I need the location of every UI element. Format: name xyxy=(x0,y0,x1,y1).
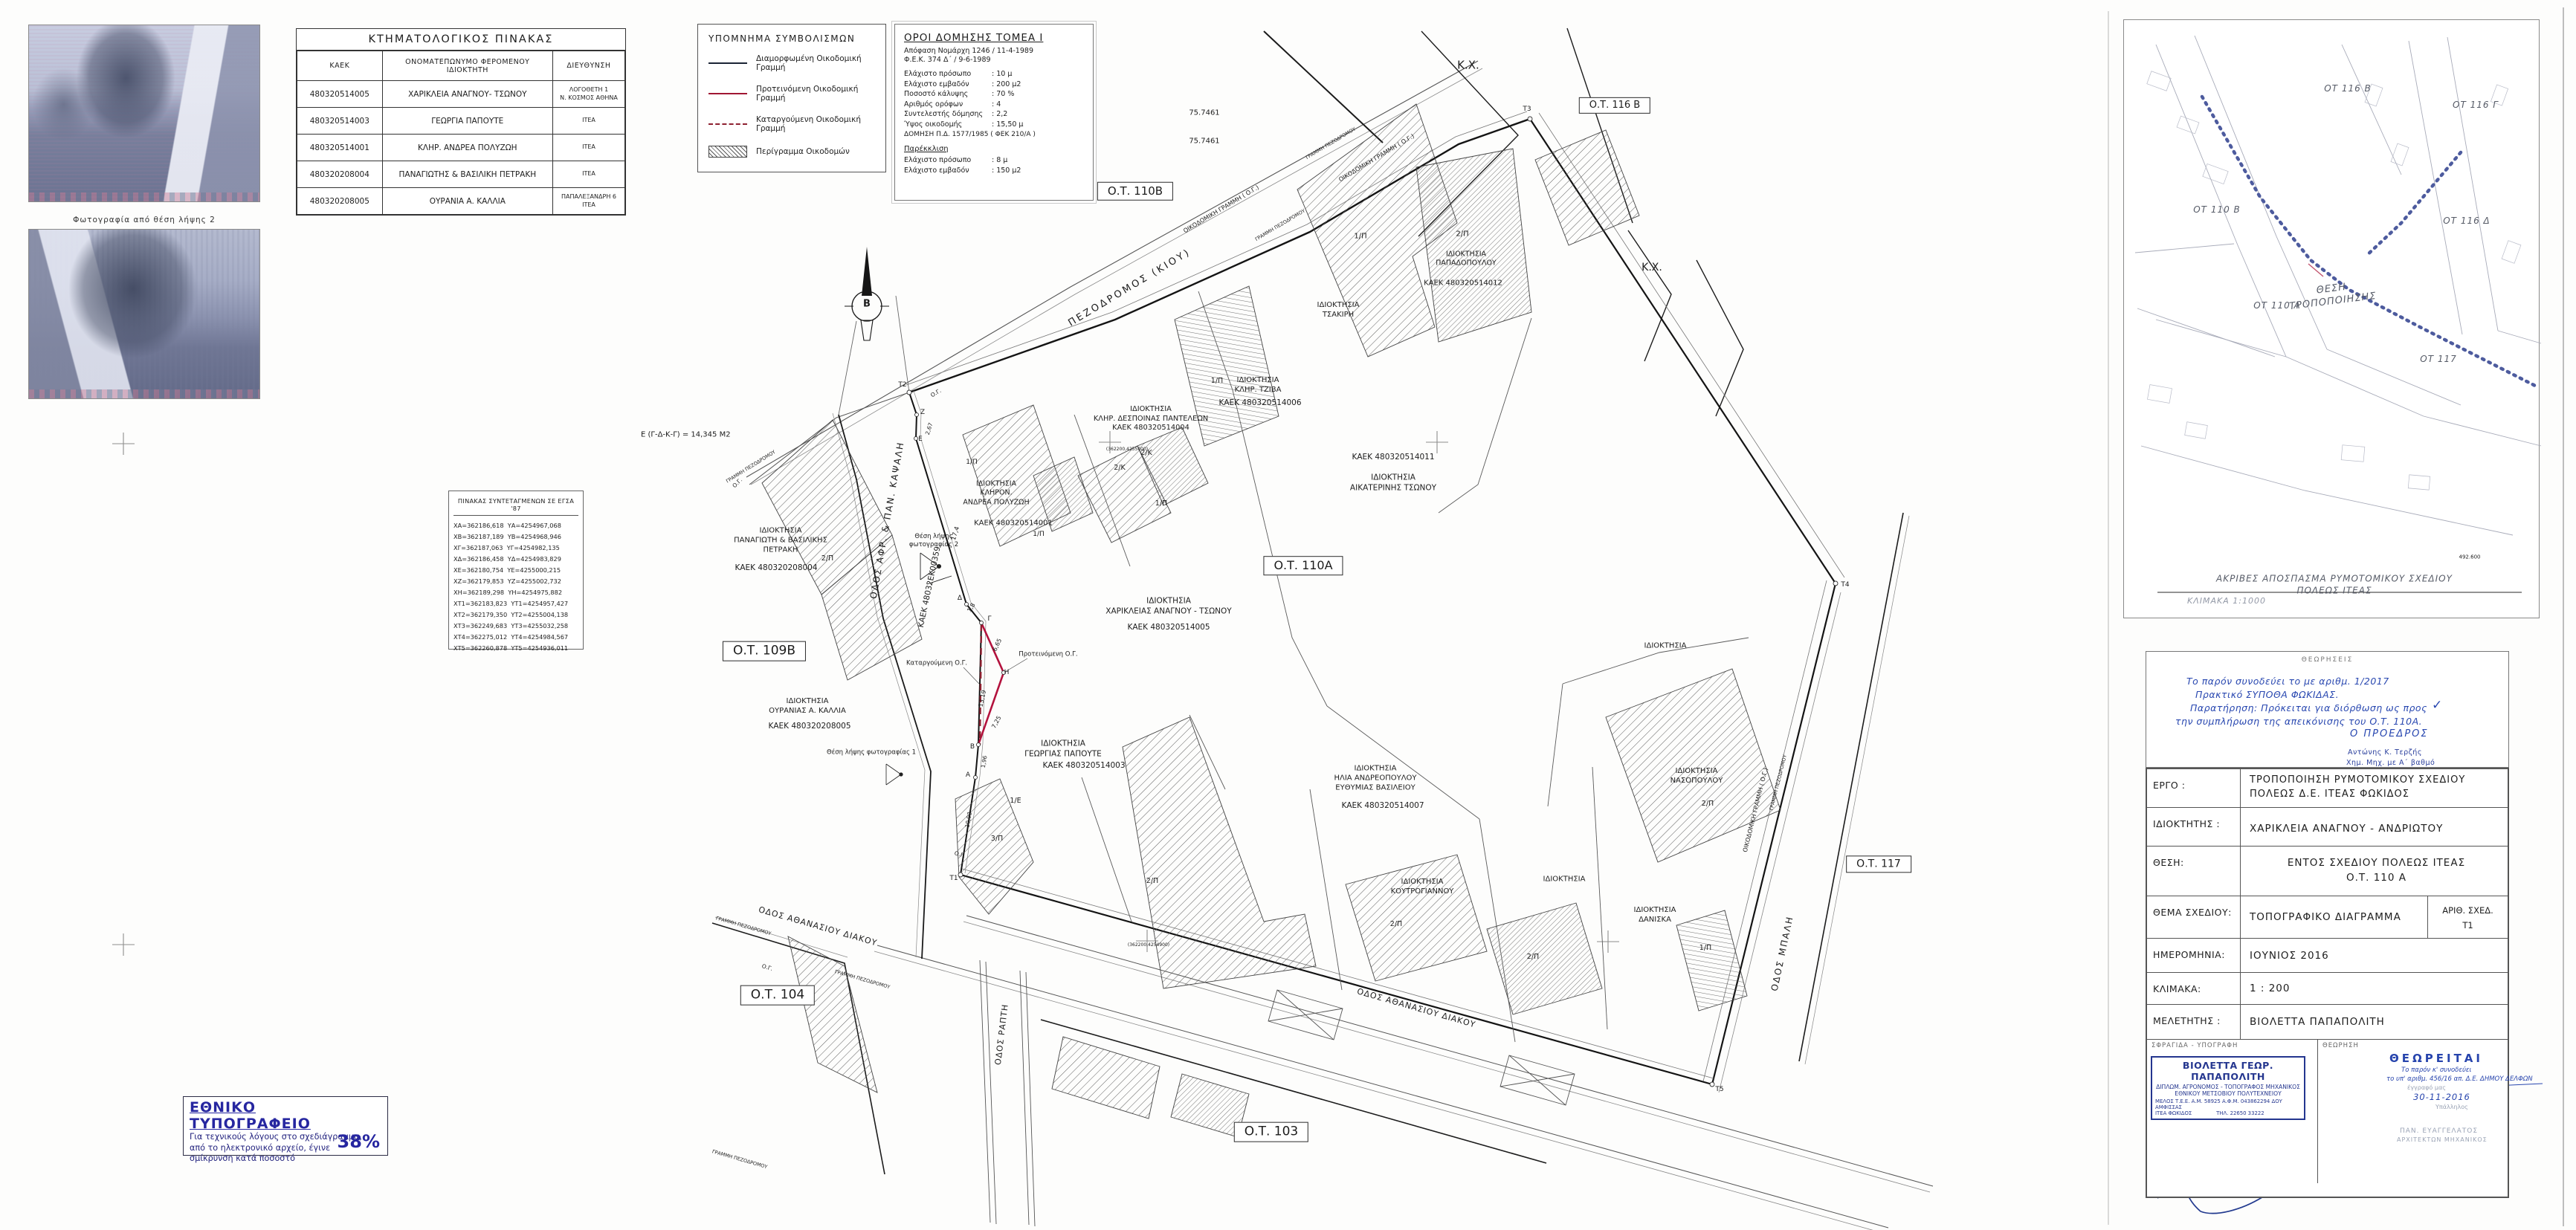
terms-title: ΟΡΟΙ ΔΟΜΗΣΗΣ ΤΟΜΕΑ Ι xyxy=(904,32,1084,44)
stamp-registry: ΜΕΛΟΣ Τ.Ε.Ε. Α.Μ. 58925 Α.Φ.Μ. 043862294… xyxy=(2154,1098,2302,1110)
proposed-building-line xyxy=(978,623,1004,745)
field-label-surveyor: ΜΕΛΕΤΗΤΗΣ : xyxy=(2147,1005,2241,1039)
terms-row: Αριθμός ορόφων: 4 xyxy=(904,100,1084,110)
terms-row: Ύψος οικοδομής: 15,50 μ xyxy=(904,120,1084,130)
approval-hand-1: Το παρόν κ' συνοδεύει xyxy=(2401,1066,2471,1074)
cadastral-cell: ΛΟΓΟΘΕΤΗ 1 Ν. ΚΟΣΜΟΣ ΑΘΗΝΑ xyxy=(552,81,624,108)
coordinate-row: ΧΤ2=362179,350 ΥΤ2=4255004,138 xyxy=(453,609,578,621)
field-drawing-number: ΑΡΙΘ. ΣΧΕΔ. Τ1 xyxy=(2427,896,2508,938)
approvals-box: ΘΕΩΡΗΣΕΙΣ Το παρόν συνοδεύει το με αριθμ… xyxy=(2146,651,2509,768)
signer-title: Χημ. Μηχ. με Α΄ βαθμό xyxy=(2346,759,2435,767)
coordinate-row: ΧΤ1=362183,823 ΥΤ1=4254957,427 xyxy=(453,598,578,609)
cadastral-cell: 480320514003 xyxy=(297,108,383,135)
field-label-ergo: ΕΡΓΟ : xyxy=(2147,769,2241,807)
approval-note-line: Το παρόν συνοδεύει το με αριθμ. 1/2017 xyxy=(2186,676,2389,687)
stamp-university: ΕΘΝΙΚΟΥ ΜΕΤΣΟΒΙΟΥ ΠΟΛΥΤΕΧΝΕΙΟΥ xyxy=(2154,1090,2302,1097)
legend-item-label: Καταργούμενη Οικοδομική Γραμμή xyxy=(756,115,878,133)
terms-row-value: : 8 μ xyxy=(992,155,1007,166)
cadastral-cell: 480320514001 xyxy=(297,135,383,161)
cadastral-row: 480320208004ΠΑΝΑΓΙΩΤΗΣ & ΒΑΣΙΛΙΚΗ ΠΕΤΡΑΚ… xyxy=(297,161,625,188)
camera-icon xyxy=(920,553,952,584)
field-value-subject: ΤΟΠΟΓΡΑΦΙΚΟ ΔΙΑΓΡΑΜΜΑ xyxy=(2241,896,2427,938)
cadastral-header-owner: ΟΝΟΜΑΤΕΠΩΝΥΜΟ ΦΕΡΟΜΕΝΟΥ ΙΔΙΟΚΤΗΤΗ xyxy=(382,51,552,81)
cadastral-cell: ΙΤΕΑ xyxy=(552,108,624,135)
cadastral-cell: ΓΕΩΡΓΙΑ ΠΑΠΟΥΤΕ xyxy=(382,108,552,135)
field-label-scale: ΚΛΙΜΑΚΑ: xyxy=(2147,973,2241,1004)
cadastral-cell: ΟΥΡΑΝΙΑ Α. ΚΑΛΛΙΑ xyxy=(382,188,552,215)
print-note-title: ΕΘΝΙΚΟ ΤΥΠΟΓΡΑΦΕΙΟ xyxy=(190,1099,381,1132)
approved-stamp-title: ΘΕΩΡΕΙΤΑΙ xyxy=(2389,1052,2483,1065)
reduction-percent: 38% xyxy=(338,1131,380,1152)
cadastral-row: 480320514003ΓΕΩΡΓΙΑ ΠΑΠΟΥΤΕΙΤΕΑ xyxy=(297,108,625,135)
approvals-header: ΘΕΩΡΗΣΕΙΣ xyxy=(2146,656,2508,664)
approval-hand-3: έγγραφό μας xyxy=(2407,1084,2446,1091)
legend-item: Καταργούμενη Οικοδομική Γραμμή xyxy=(708,115,878,133)
cadastral-header-kaek: ΚΑΕΚ xyxy=(297,51,383,81)
inset-dotted-route xyxy=(2202,97,2537,386)
terms-row-label: Ελάχιστο εμβαδόν xyxy=(904,80,992,90)
terms-row-label: Ελάχιστο πρόσωπο xyxy=(904,69,992,80)
terms-row-value: : 10 μ xyxy=(992,69,1012,80)
field-value-surveyor: ΒΙΟΛΕΤΤΑ ΠΑΠΑΠΟΛΙΤΗ xyxy=(2241,1005,2508,1039)
coordinate-row: ΧΓ=362187,063 ΥΓ=4254982,135 xyxy=(453,543,578,554)
field-value-scale: 1 : 200 xyxy=(2241,973,2508,1004)
coordinate-row: ΧΤ4=362275,012 ΥΤ4=4254984,567 xyxy=(453,632,578,643)
coordinate-row: ΧΤ3=362249,683 ΥΤ3=4255032,258 xyxy=(453,621,578,632)
field-value-ergo: ΤΡΟΠΟΠΟΙΗΣΗ ΡΥΜΟΤΟΜΙΚΟΥ ΣΧΕΔΙΟΥ ΠΟΛΕΩΣ Δ… xyxy=(2241,769,2508,807)
cadastral-cell: 480320208005 xyxy=(297,188,383,215)
terms-row: Ελάχιστο πρόσωπο: 8 μ xyxy=(904,155,1084,166)
terms-row: Συντελεστής δόμησης: 2,2 xyxy=(904,109,1084,120)
print-note-line: σμίκρυνση κατά ποσοστό xyxy=(190,1153,381,1165)
north-arrow xyxy=(845,247,889,340)
cadastral-row: 480320208005ΟΥΡΑΝΙΑ Α. ΚΑΛΛΙΑΠΑΠΑΛΕΞΑΝΔΡ… xyxy=(297,188,625,215)
terms-row-value: : 200 μ2 xyxy=(992,80,1021,90)
terms-row-value: : 15,50 μ xyxy=(992,120,1023,130)
approval-hand-2: το υπ' αριθμ. 456/16 απ. Δ.Ε. ΔΗΜΟΥ ΔΕΛΦ… xyxy=(2386,1075,2533,1083)
solid-red-symbol xyxy=(708,93,747,94)
legend-item-label: Διαμορφωμένη Οικοδομική Γραμμή xyxy=(756,54,878,72)
cadastral-cell: ΙΤΕΑ xyxy=(552,161,624,188)
legend-item: Διαμορφωμένη Οικοδομική Γραμμή xyxy=(708,54,878,72)
building-outlines xyxy=(762,104,1781,1137)
terms-row-label: Αριθμός ορόφων xyxy=(904,100,992,110)
terms-row-value: : 70 % xyxy=(992,89,1014,100)
removed-building-line xyxy=(980,624,981,745)
president-label: Ο ΠΡΟΕΔΡΟΣ xyxy=(2350,728,2429,739)
terms-row-label: Ελάχιστο πρόσωπο xyxy=(904,155,992,166)
scanned-topographic-sheet: { "photos": {"caption": "Φωτογραφία από … xyxy=(0,0,2576,1230)
check-mark: ✓ xyxy=(2432,698,2443,713)
coordinate-row: ΧΑ=362186,618 ΥΑ=4254967,068 xyxy=(453,520,578,531)
coordinate-row: ΧΕ=362180,754 ΥΕ=4255000,215 xyxy=(453,565,578,576)
coordinate-row: ΧΤ5=362260,878 ΥΤ5=4254936,011 xyxy=(453,643,578,654)
building-terms-box: ΟΡΟΙ ΔΟΜΗΣΗΣ ΤΟΜΕΑ Ι Απόφαση Νομάρχη 124… xyxy=(894,24,1094,201)
stamp-profession: ΔΙΠΛΩΜ. ΑΓΡΟΝΟΜΟΣ - ΤΟΠΟΓΡΑΦΟΣ ΜΗΧΑΝΙΚΟΣ xyxy=(2154,1084,2302,1090)
inset-sketch-lines xyxy=(2135,36,2541,535)
field-value-owner: ΧΑΡΙΚΛΕΙΑ ΑΝΑΓΝΟΥ - ΑΝΔΡΙΩΤΟΥ xyxy=(2241,808,2508,846)
terms-row-value: : 4 xyxy=(992,100,1001,110)
coordinate-row: ΧΒ=362187,189 ΥΒ=4254968,946 xyxy=(453,531,578,543)
field-label-date: ΗΜΕΡΟΜΗΝΙΑ: xyxy=(2147,939,2241,972)
solid-dark-symbol xyxy=(708,62,747,64)
cadastral-cell: ΚΛΗΡ. ΑΝΔΡΕΑ ΠΟΛΥΖΩΗ xyxy=(382,135,552,161)
terms-row: Ποσοστό κάλυψης: 70 % xyxy=(904,89,1084,100)
cadastral-table-title: ΚΤΗΜΑΤΟΛΟΓΙΚΟΣ ΠΙΝΑΚΑΣ xyxy=(297,29,625,51)
approval-note-line: Πρακτικό ΣΥΠΟΘΑ ΦΩΚΙΔΑΣ. xyxy=(2195,689,2339,700)
terms-note: ΔΟΜΗΣΗ Π.Δ. 1577/1985 ( ΦΕΚ 210/Α ) xyxy=(904,131,1084,138)
symbols-legend: ΥΠΟΜΝΗΜΑ ΣΥΜΒΟΛΙΣΜΩΝ Διαμορφωμένη Οικοδο… xyxy=(697,24,886,172)
coordinates-table: ΠΙΝΑΚΑΣ ΣΥΝΤΕΤΑΓΜΕΝΩΝ ΣΕ ΕΓΣΑ '87 ΧΑ=362… xyxy=(448,491,584,650)
field-label-subject: ΘΕΜΑ ΣΧΕΔΙΟΥ: xyxy=(2147,896,2241,938)
coordinate-row: ΧΔ=362186,458 ΥΔ=4254983,829 xyxy=(453,554,578,565)
cadastral-cell: ΠΑΠΑΛΕΞΑΝΔΡΗ 6 ΙΤΕΑ xyxy=(552,188,624,215)
officer-title: ΑΡΧΙΤΕΚΤΩΝ ΜΗΧΑΝΙΚΟΣ xyxy=(2397,1136,2488,1143)
stamp-address-phone: ΙΤΕΑ ΦΩΚΙΔΟΣ ΤΗΛ. 22650 33222 xyxy=(2154,1110,2302,1116)
terms-row-label: Ελάχιστο εμβαδόν xyxy=(904,166,992,176)
coordinate-row: ΧΗ=362189,298 ΥΗ=4254975,882 xyxy=(453,587,578,598)
approval-header: ΘΕΩΡΗΣΗ xyxy=(2318,1040,2508,1049)
stamp-name: ΒΙΟΛΕΤΤΑ ΓΕΩΡ. ΠΑΠΑΠΟΛΙΤΗ xyxy=(2154,1060,2302,1082)
cadastral-row: 480320514005ΧΑΡΙΚΛΕΙΑ ΑΝΑΓΝΟΥ- ΤΣΩΝΟΥΛΟΓ… xyxy=(297,81,625,108)
coordinate-row: ΧΖ=362179,853 ΥΖ=4255002,732 xyxy=(453,576,578,587)
field-value-location: ΕΝΤΟΣ ΣΧΕΔΙΟΥ ΠΟΛΕΩΣ ΙΤΕΑΣ Ο.Τ. 110 Α xyxy=(2241,847,2508,896)
legend-item: Προτεινόμενη Οικοδομική Γραμμή xyxy=(708,85,878,103)
terms-row: Ελάχιστο εμβαδόν: 150 μ2 xyxy=(904,166,1084,176)
cadastral-header-address: ΔΙΕΥΘΥΝΣΗ xyxy=(552,51,624,81)
terms-row-label: Συντελεστής δόμησης xyxy=(904,109,992,120)
surveyor-stamp: ΒΙΟΛΕΤΤΑ ΓΕΩΡ. ΠΑΠΑΠΟΛΙΤΗ ΔΙΠΛΩΜ. ΑΓΡΟΝΟ… xyxy=(2151,1056,2305,1120)
national-printing-note: ΕΘΝΙΚΟ ΤΥΠΟΓΡΑΦΕΙΟ Για τεχνικούς λόγους … xyxy=(183,1096,388,1156)
signer-name: Αντώνης Κ. Τερζής xyxy=(2348,748,2422,757)
stamp-signature-header: ΣΦΡΑΓΙΔΑ - ΥΠΟΓΡΑΦΗ xyxy=(2147,1040,2317,1049)
approval-note-line: την συμπλήρωση της απεικόνισης του Ο.Τ. … xyxy=(2175,716,2422,727)
field-label-location: ΘΕΣΗ: xyxy=(2147,847,2241,896)
terms-exception-title: Παρέκκλιση xyxy=(904,145,1084,153)
field-value-date: ΙΟΥΝΙΟΣ 2016 xyxy=(2241,939,2508,972)
cadastral-cell: 480320514005 xyxy=(297,81,383,108)
cadastral-cell: ΠΑΝΑΓΙΩΤΗΣ & ΒΑΣΙΛΙΚΗ ΠΕΤΡΑΚΗ xyxy=(382,161,552,188)
terms-fek: Φ.Ε.Κ. 374 Δ΄ / 9-6-1989 xyxy=(904,56,1084,64)
coordinates-title: ΠΙΝΑΚΑΣ ΣΥΝΤΕΤΑΓΜΕΝΩΝ ΣΕ ΕΓΣΑ '87 xyxy=(453,497,578,516)
terms-row-value: : 2,2 xyxy=(992,109,1007,120)
dashed-red-symbol xyxy=(708,123,747,125)
legend-title: ΥΠΟΜΝΗΜΑ ΣΥΜΒΟΛΙΣΜΩΝ xyxy=(708,33,878,44)
cadastral-cell: 480320208004 xyxy=(297,161,383,188)
terms-row: Ελάχιστο εμβαδόν: 200 μ2 xyxy=(904,80,1084,90)
cadastral-cell: ΙΤΕΑ xyxy=(552,135,624,161)
hatch-symbol xyxy=(708,146,747,158)
terms-row-label: Ποσοστό κάλυψης xyxy=(904,89,992,100)
field-label-owner: ΙΔΙΟΚΤΗΤΗΣ : xyxy=(2147,808,2241,846)
officer-name: ΠΑΝ. ΕΥΑΓΓΕΛΑΤΟΣ xyxy=(2400,1127,2478,1135)
cadastral-table: ΚΤΗΜΑΤΟΛΟΓΙΚΟΣ ΠΙΝΑΚΑΣ ΚΑΕΚ ΟΝΟΜΑΤΕΠΩΝΥΜ… xyxy=(296,28,626,216)
camera-icon xyxy=(886,764,903,785)
approval-note-line: Παρατήρηση: Πρόκειται για διόρθωση ως πρ… xyxy=(2190,702,2427,713)
cadastral-row: 480320514001ΚΛΗΡ. ΑΝΔΡΕΑ ΠΟΛΥΖΩΗΙΤΕΑ xyxy=(297,135,625,161)
clerk-label: Υπάλληλος xyxy=(2435,1104,2468,1110)
legend-item-label: Περίγραμμα Οικοδομών xyxy=(756,147,850,156)
terms-row-value: : 150 μ2 xyxy=(992,166,1021,176)
title-block: ΕΡΓΟ : ΤΡΟΠΟΠΟΙΗΣΗ ΡΥΜΟΤΟΜΙΚΟΥ ΣΧΕΔΙΟΥ Π… xyxy=(2146,768,2509,1198)
legend-item-label: Προτεινόμενη Οικοδομική Γραμμή xyxy=(756,85,878,103)
approval-date: 30-11-2016 xyxy=(2413,1092,2470,1102)
terms-row: Ελάχιστο πρόσωπο: 10 μ xyxy=(904,69,1084,80)
terms-row-label: Ύψος οικοδομής xyxy=(904,120,992,130)
cadastral-cell: ΧΑΡΙΚΛΕΙΑ ΑΝΑΓΝΟΥ- ΤΣΩΝΟΥ xyxy=(382,81,552,108)
terms-decision: Απόφαση Νομάρχη 1246 / 11-4-1989 xyxy=(904,47,1084,55)
legend-item: Περίγραμμα Οικοδομών xyxy=(708,146,878,158)
